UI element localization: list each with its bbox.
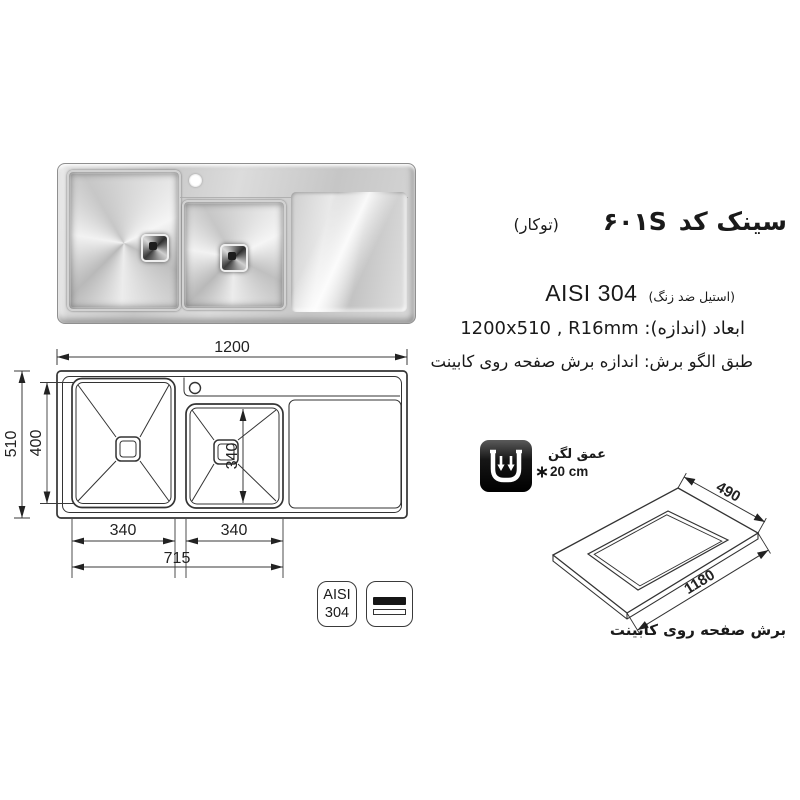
dim-715-label: 715 [164, 550, 191, 567]
drain-right [220, 244, 248, 272]
dim-1200-label: 1200 [214, 339, 250, 356]
sink-photo [57, 163, 416, 324]
cut-note-line: طبق الگو برش: اندازه برش صفحه روی کابینت [431, 352, 753, 371]
cutout-caption: برش صفحه روی کابینت [598, 621, 798, 639]
steel-note: (استیل ضد زنگ) [648, 289, 735, 304]
photo-drainboard [291, 192, 407, 312]
countertop-thickness [553, 533, 758, 619]
countertop-top-face [553, 488, 758, 613]
size-line: ابعاد (اندازه): 1200x510 , R16mm [460, 318, 745, 339]
plan-drawing: 1200 510 400 340 340 340 [0, 335, 430, 585]
spec-sheet: سینک کد ۶۰۱S (توکار) AISI 304 (استیل ضد … [0, 0, 800, 800]
photo-left-bowl [67, 170, 181, 311]
plan-drainboard [289, 400, 401, 508]
title-main: سینک کد [679, 207, 787, 236]
sheet-panel-icon [366, 581, 413, 627]
drain-left [141, 234, 169, 262]
sink-section-icon [480, 440, 532, 492]
plan-faucet-hole [190, 383, 201, 394]
dim-490-label: 490 [713, 479, 743, 506]
panel-thick-bar-icon [373, 597, 406, 605]
bowl-depth-icon [480, 440, 532, 492]
plan-deck-strip [184, 378, 400, 397]
bowl-depth-label: عمق لگن [536, 447, 606, 462]
product-title: سینک کد ۶۰۱S (توکار) [514, 207, 788, 236]
dim-510-label: 510 [3, 431, 20, 458]
title-type-note: (توکار) [514, 215, 559, 234]
cutout-drawing: 490 1180 [540, 470, 790, 640]
faucet-hole [189, 174, 202, 187]
panel-thin-bar-icon [373, 609, 406, 615]
material-line: AISI 304 (استیل ضد زنگ) [545, 280, 735, 307]
dim-1180-label: 1180 [681, 566, 718, 597]
aisi-badge-line1: AISI [323, 586, 350, 604]
dim-340a-label: 340 [110, 522, 137, 539]
steel-grade: AISI 304 [545, 280, 637, 307]
aisi-badge-line2: 304 [325, 604, 349, 622]
dim-340b-label: 340 [221, 522, 248, 539]
dim-340v-label: 340 [224, 443, 241, 470]
title-code: ۶۰۱S [603, 207, 667, 236]
aisi-304-badge: AISI 304 [317, 581, 357, 627]
photo-right-bowl [182, 200, 286, 310]
dim-400-label: 400 [28, 430, 45, 457]
